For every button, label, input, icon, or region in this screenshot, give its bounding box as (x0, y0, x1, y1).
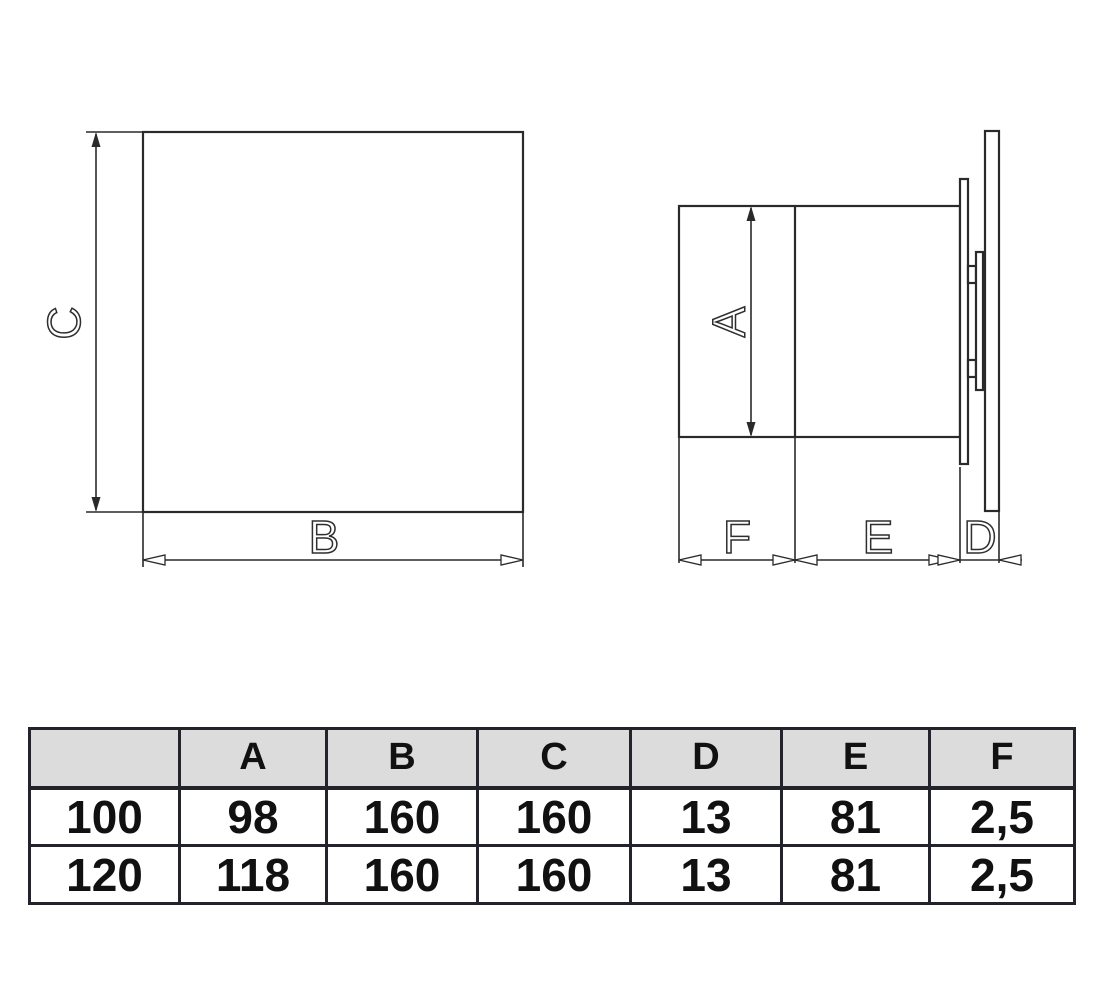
table-cell: 98 (180, 788, 327, 846)
front-view: C B (38, 132, 523, 567)
table-cell: 2,5 (930, 788, 1075, 846)
dim-label-d: D (963, 511, 996, 563)
dim-f-arrow-left (679, 555, 701, 565)
table-cell: 81 (782, 846, 930, 904)
dimension-drawing-page: C B (0, 0, 1100, 1000)
table-cell: 2,5 (930, 846, 1075, 904)
table-cell: 160 (327, 846, 478, 904)
dim-e-arrow-right (938, 555, 960, 565)
table-header-a: A (180, 729, 327, 788)
dim-b-arrow-right (501, 555, 523, 565)
dim-b-arrow-left (143, 555, 165, 565)
dim-label-a: A (703, 306, 755, 337)
table-row-100: 100 98 160 160 13 81 2,5 (30, 788, 1075, 846)
table-header-e: E (782, 729, 930, 788)
side-view-tab-top (968, 266, 976, 283)
front-view-outline (143, 132, 523, 512)
side-view: A F E D (679, 131, 1022, 565)
table-cell: 160 (478, 788, 631, 846)
table-cell: 160 (327, 788, 478, 846)
dim-label-f: F (723, 511, 751, 563)
dim-f-arrow-right (773, 555, 795, 565)
dim-label-e: E (863, 511, 894, 563)
table-header-c: C (478, 729, 631, 788)
table-cell: 160 (478, 846, 631, 904)
side-view-tab-bottom (968, 360, 976, 377)
side-view-front-plate (985, 131, 999, 511)
side-view-bracket (976, 252, 983, 390)
dim-a-arrow-down (747, 422, 756, 437)
dimension-b: B (143, 511, 523, 567)
dim-c-arrow-up (92, 132, 101, 147)
table-cell: 100 (30, 788, 180, 846)
side-view-mounting-bar (960, 179, 968, 464)
table-header-row: A B C D E F (30, 729, 1075, 788)
dim-c-arrow-down (92, 497, 101, 512)
dimension-a: A (703, 206, 756, 437)
table-cell: 13 (631, 788, 782, 846)
table-header-d: D (631, 729, 782, 788)
dim-label-c: C (38, 306, 90, 339)
table-header-b: B (327, 729, 478, 788)
table-header-f: F (930, 729, 1075, 788)
dimensions-table: A B C D E F 100 98 160 160 13 81 2,5 120… (28, 727, 1076, 905)
dim-e-arrow-left (795, 555, 817, 565)
table-row-120: 120 118 160 160 13 81 2,5 (30, 846, 1075, 904)
dim-a-arrow-up (747, 206, 756, 221)
table-cell: 118 (180, 846, 327, 904)
dimension-fed: F E D (679, 437, 1022, 565)
dimension-c: C (38, 132, 143, 512)
dim-label-b: B (309, 511, 340, 563)
table-header-size (30, 729, 180, 788)
table-cell: 13 (631, 846, 782, 904)
table-cell: 120 (30, 846, 180, 904)
dim-d-arrow-left (999, 555, 1021, 565)
dimension-diagram: C B (0, 0, 1100, 660)
table-cell: 81 (782, 788, 930, 846)
